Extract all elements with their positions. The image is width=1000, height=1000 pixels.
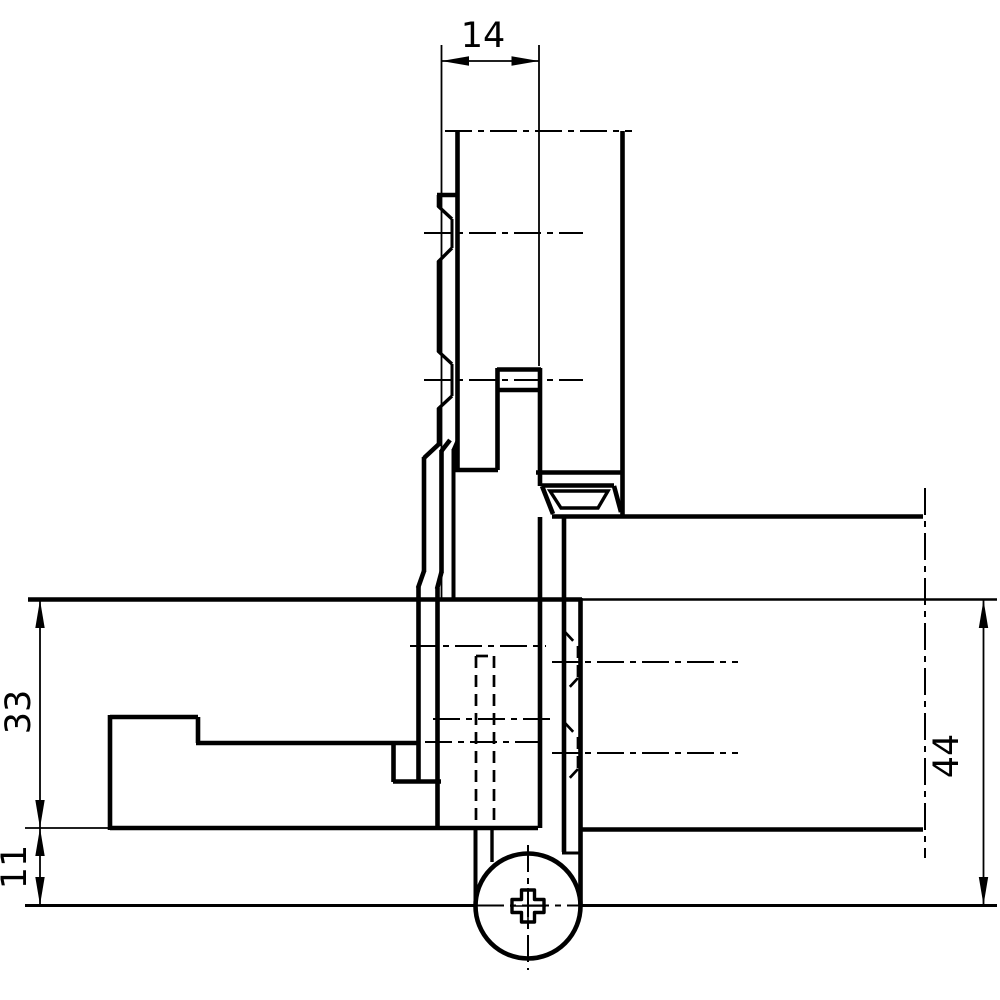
- dimension-33: 33: [0, 600, 45, 828]
- hidden-hole2-chamfer-bottom: [565, 769, 578, 783]
- hinge-leaf-lower: [418, 440, 498, 828]
- dimension-44: 44: [927, 600, 988, 905]
- dim44-arrow-top: [979, 600, 988, 628]
- knuckle-right-slant: [614, 486, 621, 512]
- hidden-hole1-chamfer-top: [565, 632, 578, 646]
- dimension-11: 11: [0, 828, 45, 905]
- dim14-label: 14: [461, 16, 506, 56]
- dim11-arrow-bottom: [35, 877, 44, 905]
- leaf-crank1-left: [424, 444, 439, 458]
- dim33-arrow-bottom: [35, 800, 44, 828]
- dim11-arrow-top: [35, 828, 44, 856]
- fixing-screw: [25, 845, 997, 970]
- dim14-arrow-left: [442, 56, 470, 65]
- hole2-chamfer-top: [438, 351, 452, 364]
- frame-section: [25, 598, 997, 905]
- hole1-chamfer-bottom: [438, 248, 452, 262]
- knuckle-inner-profile: [550, 491, 608, 508]
- hinge-section-drawing: 14 33 11 44: [0, 0, 1000, 1000]
- hidden-hole2-chamfer-top: [565, 723, 578, 737]
- dim33-label: 33: [0, 690, 39, 735]
- centerlines: [410, 131, 925, 858]
- hinge-pin: [497, 368, 579, 853]
- dim44-arrow-bottom: [979, 877, 988, 905]
- dim11-label: 11: [0, 845, 35, 890]
- leaf-crank2-left: [418, 571, 424, 588]
- frame-stop-profile: [110, 715, 441, 830]
- hinge-knuckle: [542, 486, 923, 517]
- dim14-arrow-right: [512, 56, 540, 65]
- hole1-chamfer-top: [438, 206, 452, 219]
- hole2-chamfer-bottom: [438, 396, 452, 409]
- leaf-crank1-inner: [442, 440, 451, 451]
- hidden-hole1-chamfer-bottom: [565, 678, 578, 692]
- drawing-canvas: 14 33 11 44: [0, 0, 1000, 1000]
- dim33-arrow-top: [35, 600, 44, 628]
- dim44-label: 44: [927, 734, 967, 779]
